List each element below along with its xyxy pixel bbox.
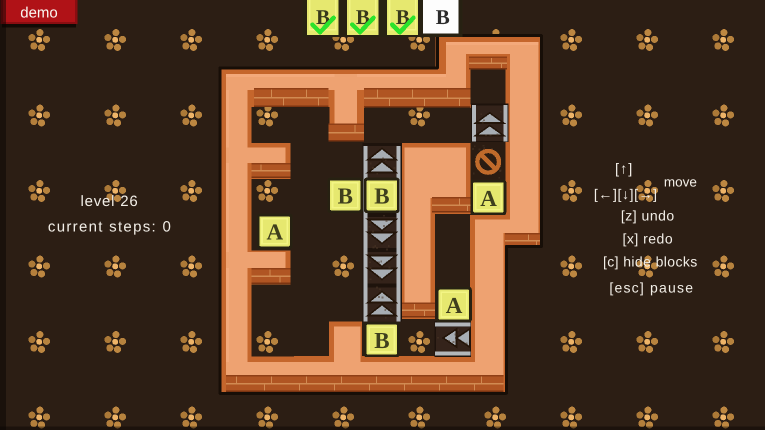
svg-text:B: B: [374, 184, 389, 209]
svg-text:[x] redo: [x] redo: [622, 231, 673, 247]
svg-text:[↑]: [↑]: [615, 162, 633, 178]
svg-text:B: B: [374, 328, 389, 353]
svg-text:demo: demo: [20, 5, 58, 22]
svg-text:current steps: 0: current steps: 0: [48, 219, 172, 236]
svg-text:B: B: [338, 184, 353, 209]
svg-text:A: A: [446, 293, 463, 318]
svg-text:[←][↓][→]: [←][↓][→]: [594, 186, 658, 202]
svg-text:level 26: level 26: [80, 193, 138, 210]
svg-text:[z] undo: [z] undo: [621, 208, 675, 224]
svg-text:A: A: [480, 186, 497, 211]
svg-text:[c] hide blocks: [c] hide blocks: [603, 253, 698, 269]
svg-text:[esc] pause: [esc] pause: [609, 279, 694, 295]
svg-text:move: move: [664, 175, 697, 190]
svg-text:A: A: [266, 220, 283, 245]
svg-text:B: B: [436, 5, 450, 29]
